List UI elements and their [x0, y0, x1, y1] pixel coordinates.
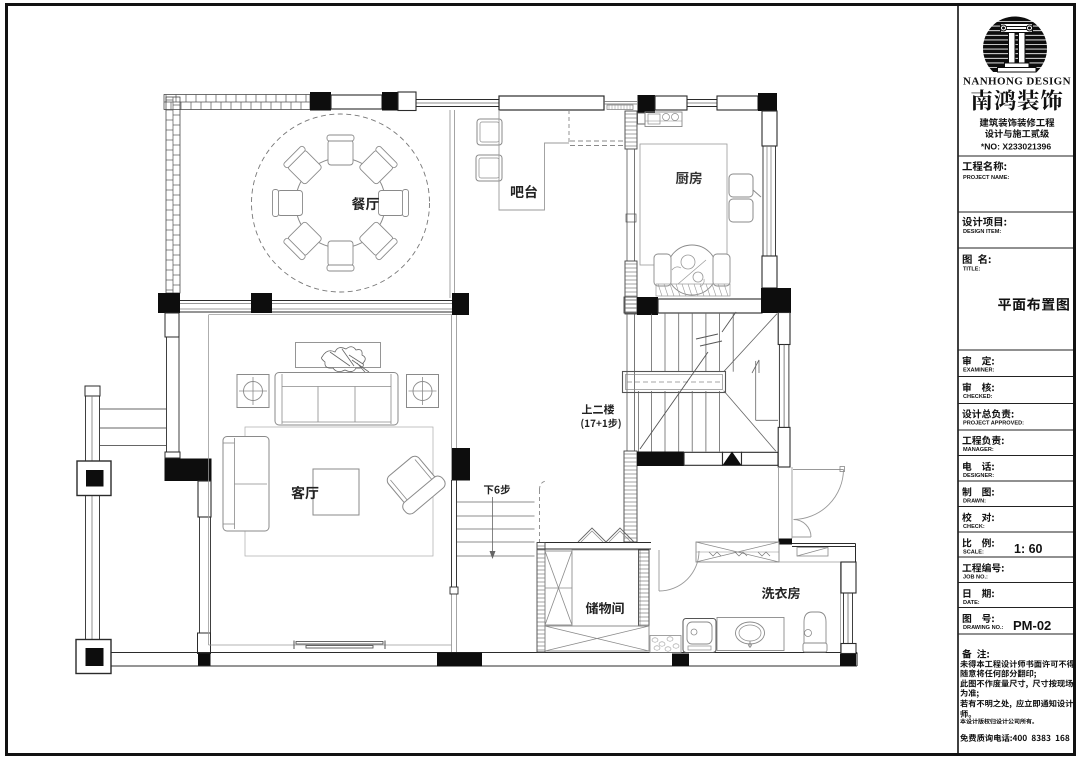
svg-text:PROJECT NAME:: PROJECT NAME: — [963, 175, 1009, 181]
svg-text:PM-02: PM-02 — [1013, 618, 1051, 633]
svg-text:CHECKED:: CHECKED: — [963, 394, 993, 400]
svg-text:PROJECT APPROVED:: PROJECT APPROVED: — [963, 421, 1024, 427]
svg-text:CHECK:: CHECK: — [963, 524, 985, 530]
svg-text:MANAGER:: MANAGER: — [963, 447, 994, 453]
svg-text:JOB NO.:: JOB NO.: — [963, 575, 988, 581]
svg-text:NANHONG DESIGN: NANHONG DESIGN — [963, 76, 1071, 88]
svg-text:TITLE:: TITLE: — [963, 267, 981, 273]
svg-text:*NO: X233021396: *NO: X233021396 — [981, 142, 1051, 152]
svg-text:DATE:: DATE: — [963, 600, 980, 606]
svg-text:DRAWN:: DRAWN: — [963, 499, 986, 505]
svg-text:SCALE:: SCALE: — [963, 550, 984, 556]
svg-text:DRAWING NO.:: DRAWING NO.: — [963, 625, 1004, 631]
svg-text:DESIGNER:: DESIGNER: — [963, 473, 994, 479]
svg-text:1: 60: 1: 60 — [1014, 542, 1043, 556]
svg-text:DESIGN ITEM:: DESIGN ITEM: — [963, 229, 1001, 235]
svg-text:EXAMINER:: EXAMINER: — [963, 368, 995, 374]
